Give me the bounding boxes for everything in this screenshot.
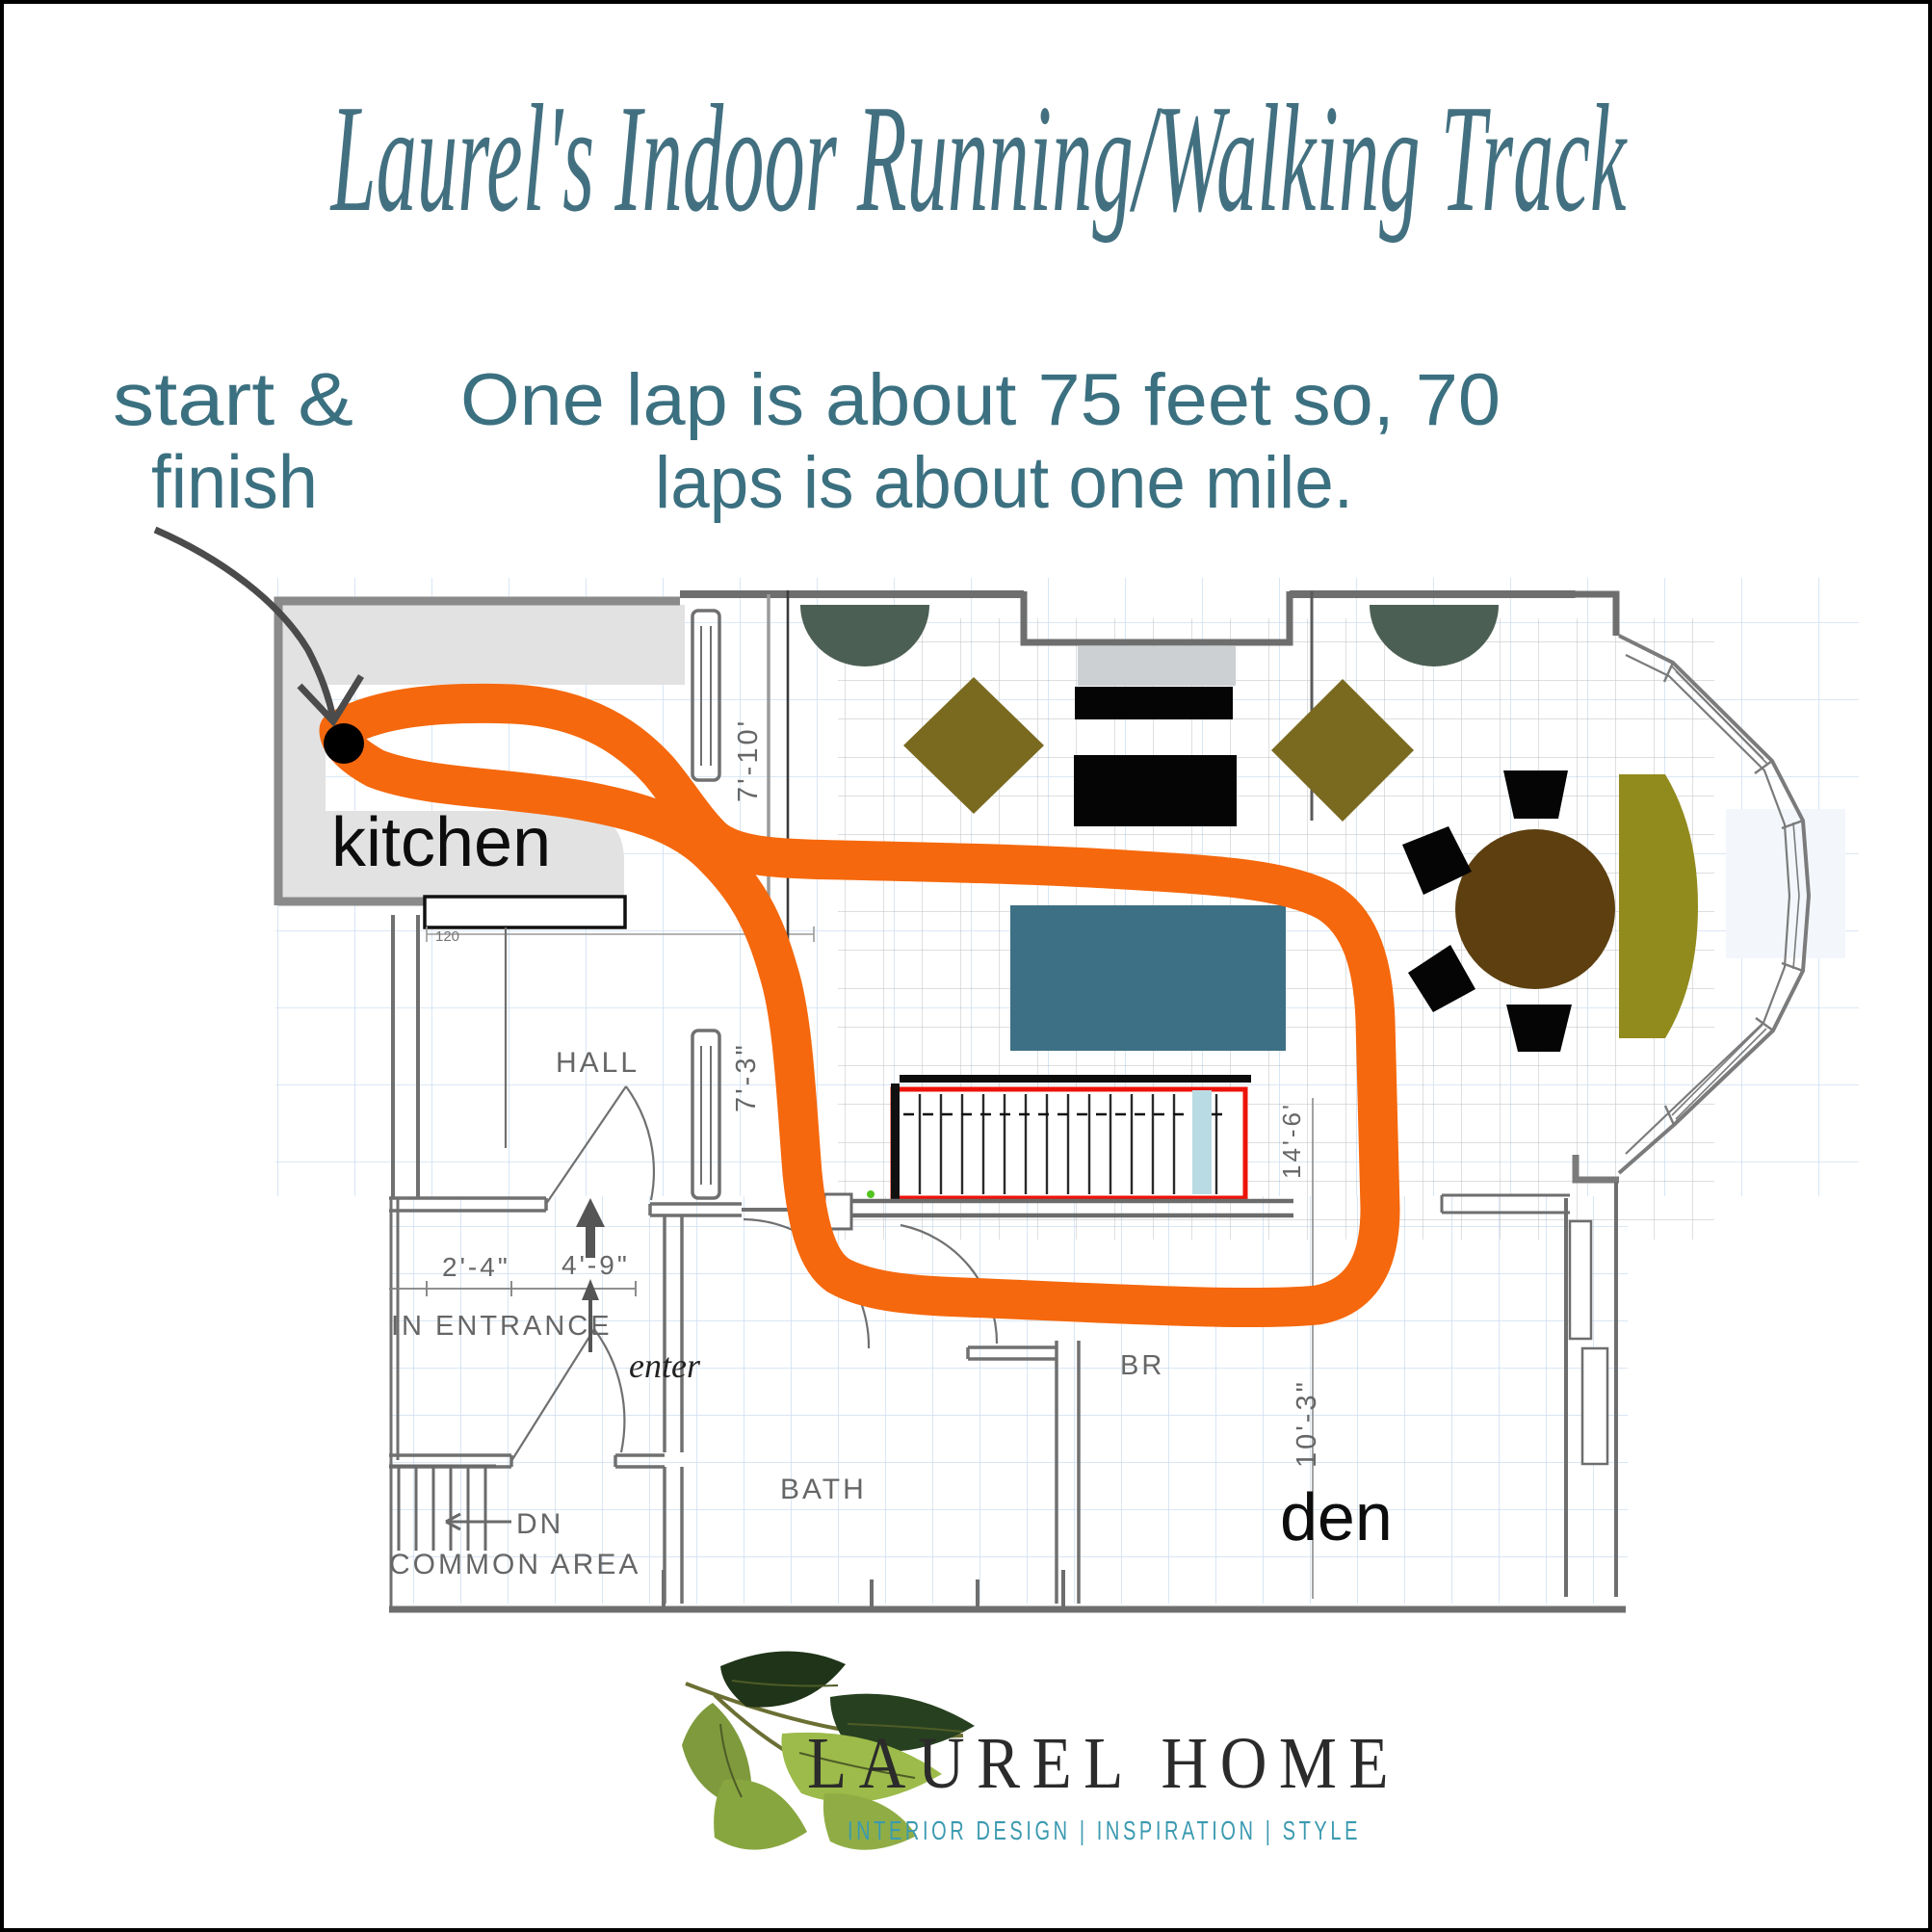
- svg-text:2'-4": 2'-4": [442, 1252, 510, 1282]
- svg-text:laps is about one mile.: laps is about one mile.: [655, 442, 1353, 524]
- svg-text:7'-10': 7'-10': [733, 718, 764, 802]
- svg-text:finish: finish: [151, 439, 318, 524]
- svg-text:BR: BR: [1120, 1350, 1164, 1381]
- svg-text:start &: start &: [113, 356, 353, 441]
- svg-text:INTERIOR DESIGN | INSPIRATION: INTERIOR DESIGN | INSPIRATION | STYLE: [848, 1815, 1361, 1845]
- svg-text:enter: enter: [629, 1346, 701, 1385]
- svg-text:HALL: HALL: [556, 1047, 640, 1079]
- svg-text:7'-3": 7'-3": [731, 1042, 762, 1112]
- svg-text:kitchen: kitchen: [331, 804, 551, 881]
- svg-text:BATH: BATH: [780, 1474, 867, 1505]
- svg-text:den: den: [1280, 1479, 1393, 1554]
- svg-text:One lap is about 75 feet so, 7: One lap is about 75 feet so, 70: [460, 359, 1501, 441]
- svg-text:Laurel's Indoor Running/Walkin: Laurel's Indoor Running/Walking Track: [329, 72, 1628, 244]
- svg-text:DN: DN: [516, 1508, 563, 1540]
- svg-text:120: 120: [435, 928, 459, 945]
- svg-text:14'-6': 14'-6': [1277, 1102, 1306, 1179]
- svg-text:LAUREL HOME: LAUREL HOME: [807, 1723, 1400, 1804]
- svg-text:COMMON AREA: COMMON AREA: [389, 1549, 640, 1580]
- svg-text:IN ENTRANCE: IN ENTRANCE: [391, 1311, 613, 1342]
- svg-text:4'-9": 4'-9": [561, 1250, 630, 1280]
- svg-text:10'-3": 10'-3": [1292, 1379, 1322, 1468]
